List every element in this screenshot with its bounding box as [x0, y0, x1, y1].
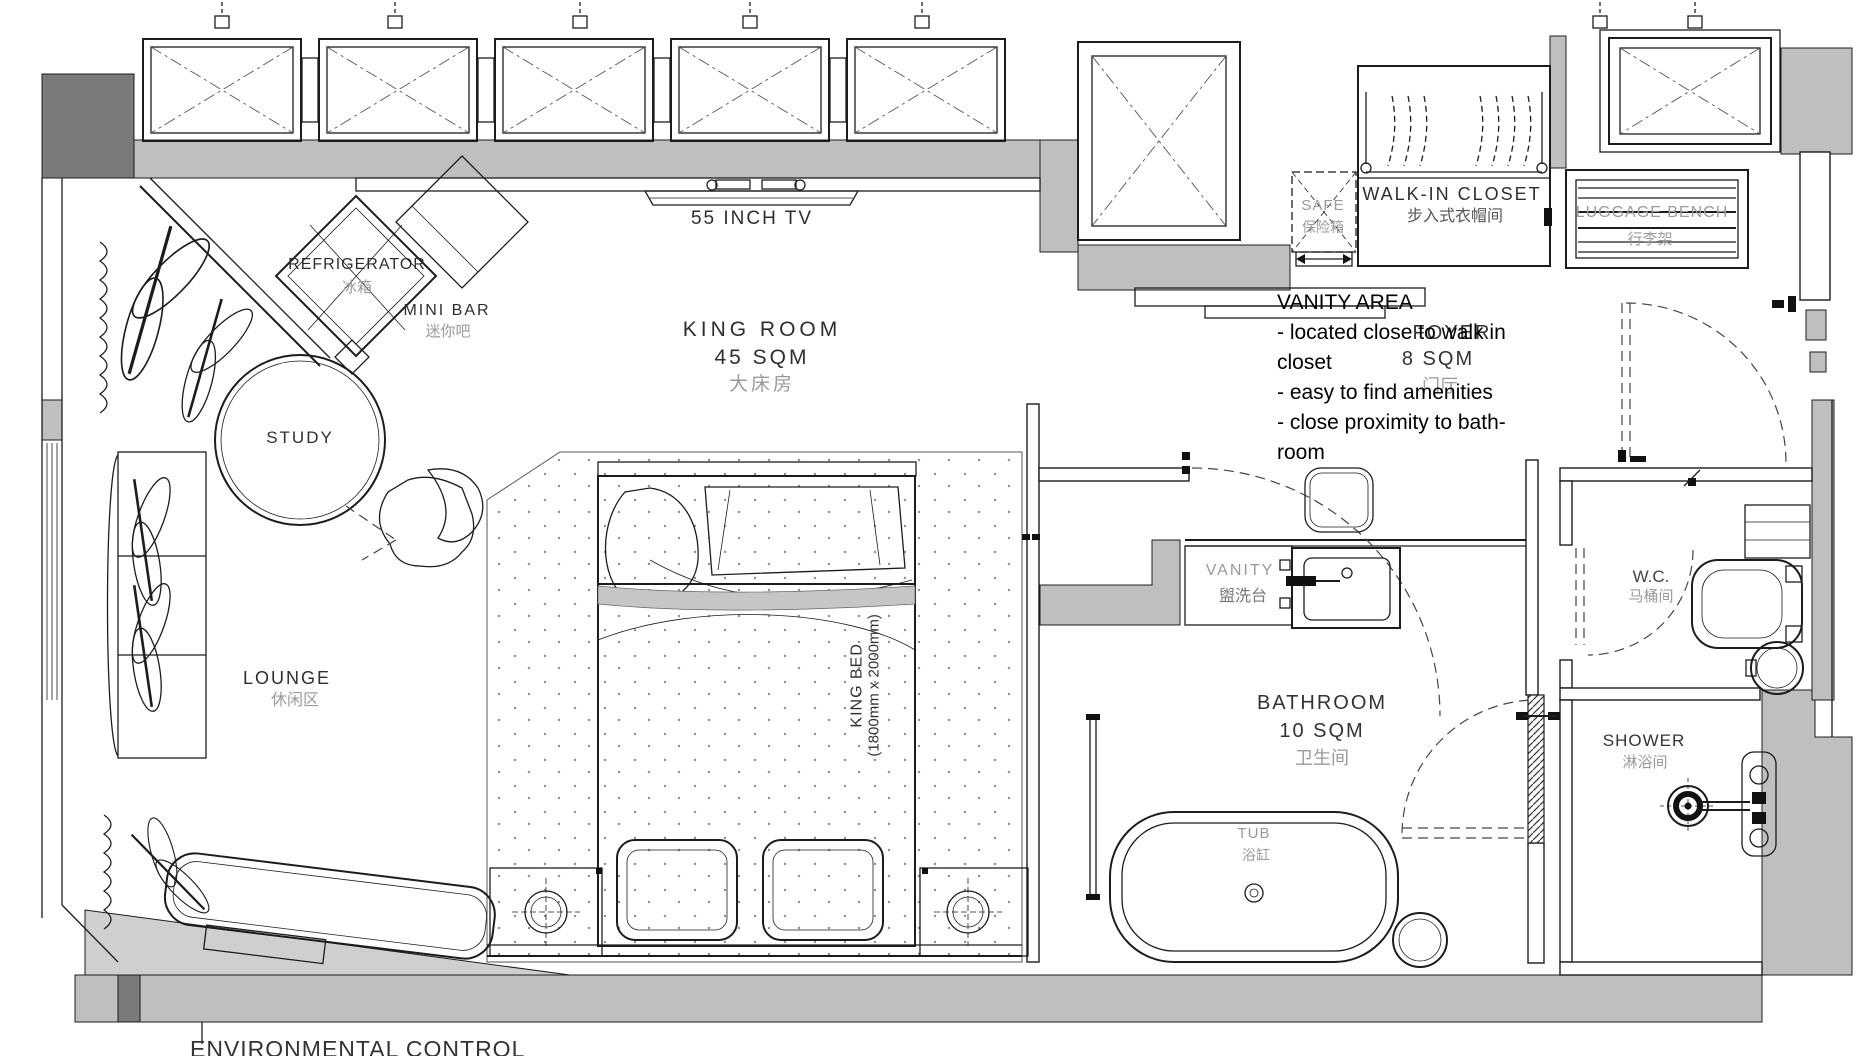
king-room-label: KING ROOM — [683, 318, 842, 342]
annotation-line: closet — [1277, 348, 1506, 378]
king-bed-label: KING BED (1800mm x 2000mm) — [849, 575, 884, 795]
toilet — [1692, 505, 1810, 694]
floor-plan-page: 55 INCH TV KING ROOM 45 SQM 大床房 REFRIGER… — [0, 0, 1862, 1056]
plant-icon — [91, 216, 263, 929]
luggage-bench-label-cn: 行李架 — [1627, 232, 1672, 249]
shower-label: SHOWER — [1603, 731, 1686, 750]
vanity-label: VANITY — [1206, 562, 1275, 580]
king-bed-dimensions: (1800mm x 2000mm) — [867, 575, 884, 795]
curtain — [100, 242, 111, 929]
walk-in-closet-label-cn: 步入式衣帽间 — [1407, 208, 1503, 226]
bedroom-carpet — [487, 452, 1022, 962]
tub-label-cn: 浴缸 — [1242, 848, 1270, 864]
annotation-line: - close proximity to bath- — [1277, 408, 1506, 438]
vanity-counter — [1185, 468, 1400, 628]
wc-label-cn: 马桶间 — [1628, 589, 1673, 606]
ceiling-panels — [143, 39, 1005, 141]
bathroom-area: 10 SQM — [1279, 720, 1364, 742]
glass-partition — [1086, 714, 1100, 900]
bathroom-label-c: 卫生间 — [1295, 748, 1349, 768]
walk-in-closet-label: WALK-IN CLOSET — [1362, 184, 1541, 204]
environmental-control-label: ENVIRONMENTAL CONTROL — [190, 1036, 525, 1056]
right-panel — [1600, 30, 1780, 152]
luggage-bench-label: LUGGAGE BENCH — [1576, 204, 1729, 222]
study-label: STUDY — [266, 428, 334, 447]
bathtub — [1110, 812, 1447, 967]
vanity-area-annotation: VANITY AREA - located close to walk in c… — [1277, 288, 1506, 468]
mini-bar-label-cn: 迷你吧 — [425, 324, 470, 341]
floor-plan-drawing — [0, 0, 1862, 1056]
tv-label: 55 INCH TV — [691, 208, 813, 229]
shower-label-cn: 淋浴间 — [1622, 755, 1667, 772]
annotation-line: - located close to walk in — [1277, 318, 1506, 348]
tv — [356, 178, 1040, 205]
safe-label-cn: 保险箱 — [1302, 220, 1344, 236]
hanger-icons — [1388, 96, 1531, 166]
wc-label: W.C. — [1633, 567, 1670, 586]
lounge-label-cn: 休闲区 — [271, 692, 319, 710]
shaft-panel — [1078, 42, 1240, 240]
bathroom-label: BATHROOM — [1257, 692, 1387, 714]
refrigerator-label-cn: 冰箱 — [342, 280, 372, 297]
king-bed-name: KING BED — [849, 575, 867, 795]
refrigerator-label: REFRIGERATOR — [288, 256, 426, 274]
shower-head-icon — [1660, 752, 1776, 856]
lounge-label: LOUNGE — [243, 668, 331, 688]
desk-chair — [346, 469, 483, 567]
mini-bar-label: MINI BAR — [403, 302, 490, 320]
vanity-label-cn: 盥洗台 — [1219, 588, 1267, 606]
vanity-area-title: VANITY AREA — [1277, 288, 1506, 318]
sofa — [108, 452, 207, 758]
tub-label: TUB — [1238, 826, 1271, 843]
annotation-line: - easy to find amenities — [1277, 378, 1506, 408]
king-room-label-cn: 大床房 — [729, 374, 795, 395]
annotation-line: room — [1277, 438, 1506, 468]
grid-ticks — [215, 2, 1702, 28]
king-room-area: 45 SQM — [714, 346, 809, 370]
safe-label: SAFE — [1301, 198, 1344, 215]
